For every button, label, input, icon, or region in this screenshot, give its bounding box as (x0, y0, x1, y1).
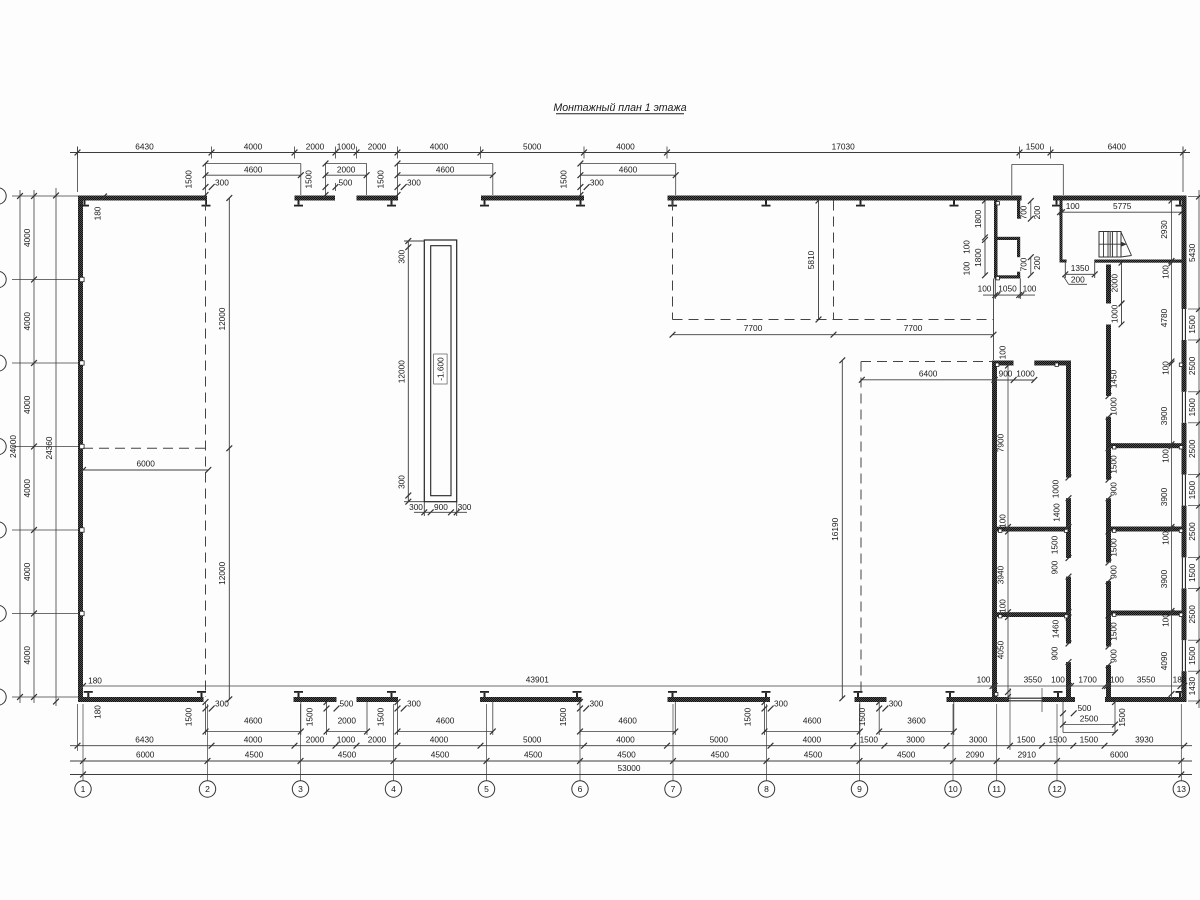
svg-text:200: 200 (1032, 205, 1042, 219)
svg-text:2500: 2500 (1080, 714, 1099, 724)
svg-text:300: 300 (215, 178, 229, 188)
svg-text:1050: 1050 (998, 284, 1017, 294)
svg-text:1: 1 (81, 784, 86, 794)
svg-text:900: 900 (1050, 646, 1060, 660)
svg-text:300: 300 (215, 699, 229, 709)
svg-text:43901: 43901 (526, 675, 549, 685)
svg-text:100: 100 (1161, 361, 1171, 375)
svg-text:5810: 5810 (806, 250, 816, 269)
svg-text:1700: 1700 (1078, 675, 1097, 685)
svg-text:1500: 1500 (1026, 141, 1045, 151)
svg-text:5000: 5000 (523, 141, 542, 151)
svg-text:1500: 1500 (1048, 734, 1067, 744)
svg-text:1500: 1500 (305, 707, 315, 726)
svg-text:200: 200 (1032, 256, 1042, 270)
svg-text:1500: 1500 (376, 170, 386, 189)
svg-text:4000: 4000 (244, 734, 263, 744)
svg-text:1500: 1500 (1187, 480, 1197, 499)
svg-text:4000: 4000 (430, 734, 449, 744)
svg-text:4000: 4000 (803, 734, 822, 744)
svg-text:9: 9 (857, 784, 862, 794)
svg-text:5430: 5430 (1187, 243, 1197, 262)
svg-text:1500: 1500 (1017, 734, 1036, 744)
svg-text:1500: 1500 (304, 170, 314, 189)
svg-text:7: 7 (671, 784, 676, 794)
svg-text:1500: 1500 (857, 707, 867, 726)
svg-text:1000: 1000 (337, 141, 356, 151)
svg-text:4780: 4780 (1159, 308, 1169, 327)
svg-text:5000: 5000 (710, 734, 729, 744)
svg-text:4000: 4000 (430, 141, 449, 151)
svg-text:4000: 4000 (22, 562, 32, 581)
svg-text:1500: 1500 (1117, 708, 1127, 727)
svg-text:300: 300 (409, 502, 423, 512)
svg-text:300: 300 (590, 178, 604, 188)
svg-text:16190: 16190 (830, 517, 840, 540)
svg-text:1450: 1450 (1109, 369, 1119, 388)
svg-text:1500: 1500 (1187, 315, 1197, 334)
svg-text:1000: 1000 (1109, 397, 1119, 416)
svg-text:4600: 4600 (436, 164, 455, 174)
svg-text:3600: 3600 (907, 716, 926, 726)
svg-text:1500: 1500 (184, 707, 194, 726)
svg-text:3: 3 (298, 784, 303, 794)
svg-text:100: 100 (1161, 613, 1171, 627)
svg-text:1500: 1500 (1109, 622, 1119, 641)
svg-text:1500: 1500 (860, 734, 879, 744)
svg-text:900: 900 (1109, 649, 1119, 663)
svg-text:500: 500 (1078, 703, 1092, 713)
svg-text:2: 2 (205, 784, 210, 794)
svg-text:100: 100 (962, 240, 972, 254)
svg-text:100: 100 (977, 675, 991, 685)
svg-text:100: 100 (1161, 531, 1171, 545)
svg-text:24000: 24000 (8, 435, 18, 458)
svg-text:100: 100 (1161, 449, 1171, 463)
svg-text:12000: 12000 (217, 307, 227, 330)
svg-text:900: 900 (1109, 565, 1119, 579)
svg-text:8: 8 (764, 784, 769, 794)
svg-text:6000: 6000 (136, 750, 155, 760)
svg-text:4000: 4000 (22, 646, 32, 665)
svg-text:5775: 5775 (1113, 201, 1132, 211)
svg-text:4500: 4500 (431, 750, 450, 760)
svg-text:180: 180 (88, 675, 102, 685)
svg-text:3550: 3550 (1024, 675, 1043, 685)
svg-text:300: 300 (774, 699, 788, 709)
svg-text:1500: 1500 (1187, 398, 1197, 417)
svg-text:5: 5 (484, 784, 489, 794)
svg-text:1500: 1500 (1109, 455, 1119, 474)
svg-text:2000: 2000 (368, 141, 387, 151)
svg-text:4500: 4500 (524, 750, 543, 760)
svg-text:7900: 7900 (996, 433, 1006, 452)
svg-text:1500: 1500 (184, 170, 194, 189)
svg-text:4000: 4000 (22, 228, 32, 247)
svg-text:1400: 1400 (1052, 503, 1062, 522)
svg-text:7700: 7700 (904, 323, 923, 333)
svg-text:1500: 1500 (376, 707, 386, 726)
svg-text:1500: 1500 (558, 170, 568, 189)
svg-text:2000: 2000 (306, 141, 325, 151)
svg-text:3900: 3900 (1159, 406, 1169, 425)
svg-text:4000: 4000 (22, 312, 32, 331)
svg-text:4600: 4600 (619, 164, 638, 174)
svg-text:300: 300 (407, 699, 421, 709)
svg-text:6000: 6000 (136, 459, 155, 469)
svg-text:300: 300 (889, 699, 903, 709)
svg-text:17030: 17030 (832, 141, 855, 151)
svg-text:2000: 2000 (338, 716, 357, 726)
svg-text:2000: 2000 (368, 734, 387, 744)
svg-text:3900: 3900 (1159, 569, 1169, 588)
svg-text:Монтажный план 1 этажа: Монтажный план 1 этажа (553, 102, 686, 114)
svg-text:500: 500 (339, 178, 353, 188)
svg-text:12: 12 (1052, 784, 1062, 794)
svg-text:300: 300 (590, 699, 604, 709)
svg-text:100: 100 (1051, 675, 1065, 685)
svg-text:1500: 1500 (1050, 535, 1060, 554)
svg-text:4600: 4600 (244, 164, 263, 174)
svg-text:1000: 1000 (337, 734, 356, 744)
svg-text:-1.600: -1.600 (436, 357, 446, 381)
svg-text:1500: 1500 (1187, 646, 1197, 665)
svg-text:100: 100 (1066, 201, 1080, 211)
svg-text:7700: 7700 (744, 323, 763, 333)
svg-text:4500: 4500 (804, 750, 823, 760)
svg-text:100: 100 (998, 514, 1008, 528)
svg-text:2090: 2090 (966, 750, 985, 760)
svg-text:100: 100 (978, 284, 992, 294)
svg-text:900: 900 (434, 502, 448, 512)
svg-text:300: 300 (397, 249, 407, 263)
svg-text:180: 180 (93, 705, 103, 719)
svg-text:2000: 2000 (306, 734, 325, 744)
svg-text:300: 300 (397, 475, 407, 489)
svg-text:6: 6 (578, 784, 583, 794)
svg-text:3930: 3930 (1135, 734, 1154, 744)
svg-text:3000: 3000 (906, 734, 925, 744)
svg-text:11: 11 (992, 784, 1001, 794)
svg-text:2500: 2500 (1187, 605, 1197, 624)
svg-text:900: 900 (999, 369, 1013, 379)
svg-text:12000: 12000 (217, 561, 227, 584)
svg-text:180: 180 (93, 206, 103, 220)
svg-text:6430: 6430 (135, 141, 154, 151)
svg-text:100: 100 (1023, 284, 1037, 294)
svg-text:500: 500 (340, 699, 354, 709)
svg-text:13: 13 (1177, 784, 1187, 794)
svg-text:10: 10 (948, 784, 958, 794)
svg-text:100: 100 (1110, 675, 1124, 685)
svg-text:200: 200 (1071, 275, 1085, 285)
svg-text:1500: 1500 (743, 707, 753, 726)
svg-text:6400: 6400 (1108, 141, 1127, 151)
svg-text:4500: 4500 (617, 750, 636, 760)
svg-text:1000: 1000 (1110, 304, 1120, 323)
svg-text:100: 100 (998, 345, 1008, 359)
svg-text:4600: 4600 (618, 716, 637, 726)
svg-text:4600: 4600 (244, 716, 263, 726)
svg-text:4000: 4000 (616, 734, 635, 744)
svg-text:53000: 53000 (617, 763, 640, 773)
svg-text:4500: 4500 (897, 750, 916, 760)
svg-text:1460: 1460 (1051, 619, 1061, 638)
svg-text:2910: 2910 (1018, 750, 1037, 760)
svg-text:6000: 6000 (1110, 750, 1129, 760)
svg-text:12000: 12000 (397, 360, 407, 383)
svg-text:1430: 1430 (1187, 676, 1197, 695)
svg-text:900: 900 (1109, 482, 1119, 496)
svg-text:4500: 4500 (711, 750, 730, 760)
svg-text:5000: 5000 (523, 734, 542, 744)
svg-text:1800: 1800 (973, 248, 983, 267)
svg-text:180: 180 (1173, 675, 1187, 685)
svg-text:300: 300 (407, 178, 421, 188)
svg-text:100: 100 (1161, 265, 1171, 279)
svg-text:1500: 1500 (1187, 563, 1197, 582)
svg-text:700: 700 (1019, 205, 1029, 219)
svg-text:3000: 3000 (969, 734, 988, 744)
svg-text:3940: 3940 (996, 565, 1006, 584)
svg-text:6430: 6430 (135, 734, 154, 744)
svg-text:700: 700 (1019, 257, 1029, 271)
svg-text:3900: 3900 (1159, 487, 1169, 506)
svg-text:100: 100 (998, 599, 1008, 613)
svg-text:4050: 4050 (996, 640, 1006, 659)
svg-text:4000: 4000 (616, 141, 635, 151)
svg-text:300: 300 (458, 502, 472, 512)
svg-text:4000: 4000 (22, 479, 32, 498)
svg-text:4500: 4500 (338, 750, 357, 760)
svg-text:3550: 3550 (1137, 675, 1156, 685)
svg-text:2000: 2000 (337, 164, 356, 174)
svg-text:6400: 6400 (919, 368, 938, 378)
svg-text:4500: 4500 (245, 750, 264, 760)
svg-text:1000: 1000 (1016, 369, 1035, 379)
svg-text:24360: 24360 (44, 436, 54, 459)
svg-text:4600: 4600 (436, 716, 455, 726)
svg-text:1800: 1800 (973, 209, 983, 228)
svg-text:1000: 1000 (1051, 479, 1061, 498)
svg-text:4600: 4600 (803, 716, 822, 726)
svg-text:4000: 4000 (22, 395, 32, 414)
svg-text:4090: 4090 (1159, 651, 1169, 670)
svg-text:1500: 1500 (1109, 538, 1119, 557)
svg-text:2500: 2500 (1187, 439, 1197, 458)
svg-text:1500: 1500 (558, 707, 568, 726)
svg-text:1500: 1500 (1080, 734, 1099, 744)
svg-text:100: 100 (962, 261, 972, 275)
svg-text:900: 900 (1050, 560, 1060, 574)
svg-text:2500: 2500 (1187, 356, 1197, 375)
svg-text:2500: 2500 (1187, 522, 1197, 541)
svg-text:2930: 2930 (1159, 220, 1169, 239)
svg-text:4000: 4000 (244, 141, 263, 151)
svg-text:1350: 1350 (1071, 263, 1090, 273)
svg-text:4: 4 (391, 784, 396, 794)
